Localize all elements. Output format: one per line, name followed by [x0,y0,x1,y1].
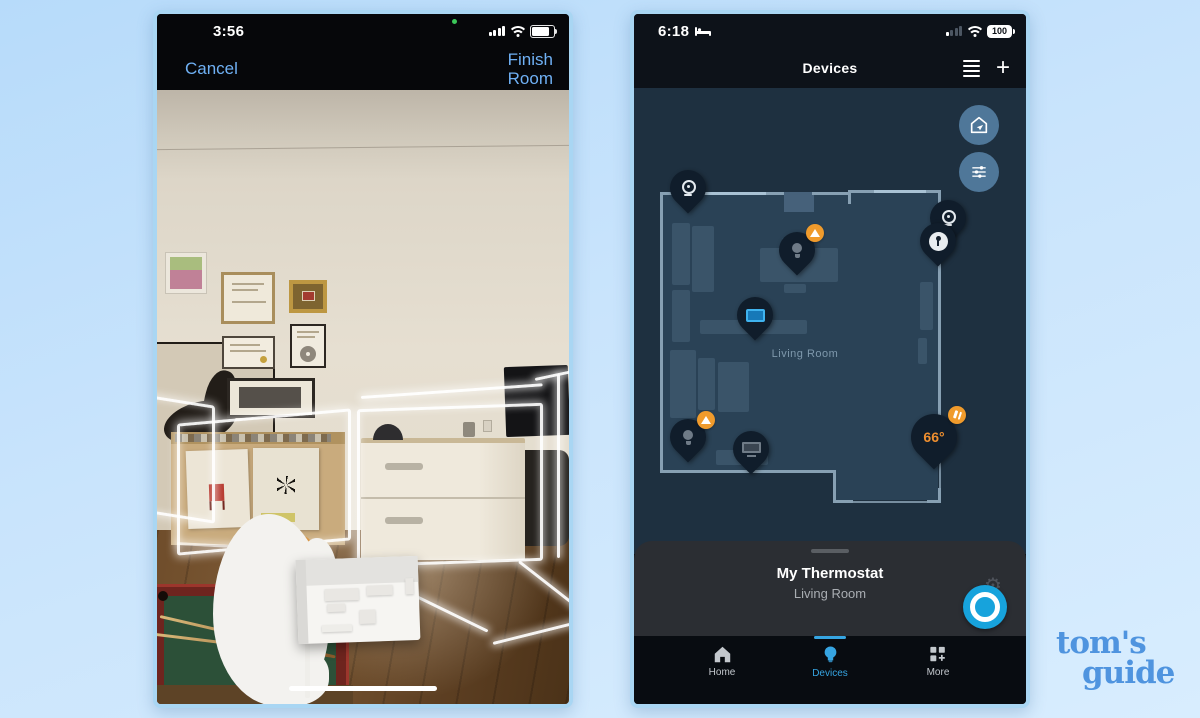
device-pin-camera[interactable] [663,163,714,214]
device-pin-display[interactable] [730,290,781,341]
battery-icon: 100 [987,25,1012,38]
ceiling-line [157,145,569,150]
lock-icon [929,232,948,251]
left-status-bar: 3:56 [157,14,569,48]
furniture-sofa [670,350,696,418]
right-status-bar: 6:18 100 [634,14,1026,48]
status-icons [489,25,556,38]
home-indicator[interactable] [289,686,437,691]
home-icon [713,646,732,663]
room-3d-model [296,556,421,644]
certificate-frame [222,336,275,369]
gold-stamp-frame [289,280,327,313]
bedtime-mode-icon [695,26,712,37]
right-phone-screenshot: 6:18 100 Devices [630,10,1030,708]
device-pin-lock[interactable] [913,216,964,267]
active-tab-indicator [814,636,846,639]
logo-line-1: tom's [1056,628,1174,658]
camera-indicator-dot [452,19,457,24]
room-name-label: Living Room [745,348,865,360]
wifi-icon [967,26,982,37]
drag-handle[interactable] [811,549,849,553]
page-title: Devices [802,60,857,76]
furniture-sofa [698,358,715,410]
cancel-button[interactable]: Cancel [185,59,238,79]
status-time: 6:18 [658,23,689,40]
wall-step [833,470,836,503]
wall-top [812,192,850,195]
thermostat-temperature: 66° [923,429,944,445]
device-pin-thermostat[interactable]: 66° [901,404,966,469]
furniture-shelf [920,282,933,330]
model-back-wall [296,556,419,586]
status-time: 3:56 [213,23,244,40]
sliders-icon [969,162,989,182]
warning-badge-icon [806,224,824,242]
wall-inset [784,192,814,212]
logo-line-2: guide [1082,658,1174,688]
alexa-logo-icon [970,592,1000,622]
ar-camera-view [157,90,569,704]
furniture-shelf [672,223,690,285]
furniture-armchair [718,362,749,412]
finish-room-button[interactable]: Finish Room [487,50,553,88]
window-segment [874,190,926,193]
smart-display-icon [746,309,765,322]
room-floor [833,470,938,500]
tab-home[interactable]: Home [682,646,762,678]
signal-icon [946,26,963,36]
more-grid-icon [929,646,947,663]
door-opening [853,501,929,503]
device-detail-card[interactable]: My Thermostat Living Room ⚙ [634,541,1026,636]
list-view-icon[interactable] [963,60,980,77]
device-name: My Thermostat [634,565,1026,582]
scan-silhouette [249,646,329,704]
battery-icon [530,25,555,38]
wall-left [660,192,663,473]
alexa-button[interactable] [963,585,1007,629]
tab-more[interactable]: More [898,646,978,678]
devices-bulb-icon [823,646,838,664]
ar-toolbar: Cancel Finish Room [157,48,569,90]
furniture-stool [784,284,806,293]
device-pin-tv[interactable] [726,424,777,475]
wifi-icon [510,26,525,37]
hvac-running-badge-icon [948,406,966,424]
add-device-icon[interactable]: + [996,58,1010,78]
furniture-shelf [672,290,690,342]
warning-badge-icon [697,411,715,429]
ar-edge-line [557,374,560,558]
map-view[interactable]: Living Room [634,88,1026,554]
light-bulb-icon [682,430,694,445]
ar-box-outline-cabinet [357,403,543,567]
devices-header: Devices + [634,48,1026,88]
furniture-shelf [918,338,927,364]
status-icons: 100 [946,25,1013,38]
left-phone-screenshot: 3:56 Cancel Finish Room [153,10,573,708]
furniture-bookcase [692,226,714,292]
recenter-home-button[interactable] [959,105,999,145]
bottom-tab-bar: Home Devices [634,636,1026,704]
page: 3:56 Cancel Finish Room [0,0,1200,718]
wall-bottom-right [927,500,941,503]
device-pin-light[interactable] [663,412,714,463]
record-award-frame [290,324,326,368]
signal-icon [489,26,506,36]
wall-bottom-right [833,500,853,503]
map-filter-button[interactable] [959,152,999,192]
camera-icon [681,180,695,196]
light-bulb-icon [791,243,803,258]
device-pin-light[interactable] [772,225,823,276]
diploma-frame [221,272,275,324]
tab-devices[interactable]: Devices [790,646,870,679]
tv-icon [742,442,761,457]
small-art-frame [165,252,207,294]
toms-guide-logo: tom's guide [1056,628,1174,689]
home-locate-icon [968,114,990,136]
